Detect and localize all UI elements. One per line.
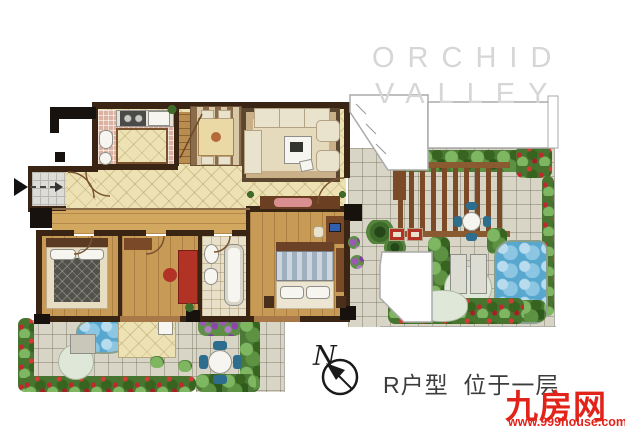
pillow bbox=[306, 286, 330, 299]
dining-chair bbox=[218, 156, 231, 165]
window-sill bbox=[254, 316, 300, 322]
pillow bbox=[78, 249, 104, 260]
terrace-boundary-line bbox=[554, 148, 555, 327]
bed-canopy bbox=[276, 251, 334, 281]
column bbox=[344, 204, 362, 221]
patio-chair bbox=[213, 341, 227, 350]
patio-table bbox=[158, 320, 173, 335]
garden-bottom-hedge bbox=[24, 376, 196, 392]
terrace-planter bbox=[393, 170, 406, 200]
floor-divider bbox=[52, 208, 250, 210]
nightstand bbox=[264, 296, 274, 308]
armchair bbox=[316, 150, 340, 172]
dining-chair bbox=[201, 156, 214, 165]
column bbox=[30, 208, 52, 228]
terrace-chair bbox=[483, 216, 491, 227]
computer-monitor bbox=[329, 223, 341, 232]
compass-n-label: N bbox=[313, 341, 337, 372]
purple-planter bbox=[350, 255, 364, 269]
red-chair bbox=[163, 268, 177, 282]
entry-arrow-icon bbox=[14, 178, 28, 196]
hatch-tick bbox=[356, 104, 366, 114]
toilet-fixture bbox=[204, 268, 218, 285]
bed-headboard bbox=[276, 242, 334, 251]
column bbox=[340, 306, 356, 320]
watermark-line1: ORCHID bbox=[372, 40, 564, 77]
patio-chair bbox=[233, 355, 242, 369]
pillow bbox=[50, 249, 76, 260]
chaise-sofa bbox=[244, 130, 262, 174]
wall-black bbox=[50, 107, 59, 133]
wall bbox=[28, 166, 94, 172]
bathtub bbox=[224, 244, 244, 306]
patio-round-table bbox=[208, 350, 232, 374]
window-sill bbox=[120, 316, 180, 322]
site-url: www.999house.com bbox=[508, 415, 625, 429]
red-desk bbox=[178, 250, 198, 304]
pergola bbox=[398, 168, 508, 231]
wall bbox=[246, 212, 250, 318]
wall bbox=[174, 106, 179, 166]
garden-chair bbox=[389, 228, 405, 241]
terrace-boundary-line bbox=[380, 326, 556, 327]
armchair bbox=[316, 120, 340, 142]
kitchen-island bbox=[116, 128, 168, 164]
lounge-chair bbox=[450, 254, 467, 294]
terrace-corner-bush bbox=[516, 146, 552, 178]
terrace-chair bbox=[466, 233, 477, 241]
dining-chair bbox=[201, 110, 214, 119]
entry-arrow-head bbox=[55, 182, 63, 192]
wardrobe bbox=[124, 238, 152, 250]
hallway-floor bbox=[52, 210, 250, 234]
lounge-chair bbox=[470, 254, 487, 294]
pillow bbox=[280, 286, 304, 299]
column bbox=[55, 152, 65, 162]
wall bbox=[344, 102, 350, 178]
watermark-line2: VALLEY bbox=[375, 76, 560, 113]
terrace-round-table bbox=[462, 212, 481, 231]
dining-centerpiece bbox=[211, 132, 221, 142]
garden-planter bbox=[70, 334, 96, 354]
entry-arrow-line bbox=[30, 186, 56, 188]
patio-boundary-line bbox=[284, 320, 285, 392]
terrace-chair bbox=[454, 216, 462, 227]
bathroom-sink bbox=[204, 244, 219, 264]
potted-plant bbox=[338, 190, 347, 199]
laptop-icon bbox=[290, 142, 303, 152]
pergola-top-rail bbox=[396, 162, 510, 168]
patio-chair bbox=[199, 355, 208, 369]
wall bbox=[118, 236, 122, 318]
garden-bush bbox=[178, 360, 192, 372]
toilet-fixture bbox=[99, 130, 113, 149]
stove-icon bbox=[120, 111, 146, 126]
hatch-tick bbox=[366, 124, 376, 134]
potted-plant bbox=[166, 104, 178, 115]
column bbox=[34, 314, 50, 324]
terrace-chair bbox=[466, 202, 477, 210]
nightstand bbox=[336, 296, 346, 308]
wardrobe bbox=[336, 248, 344, 292]
washbasin-fixture bbox=[99, 152, 112, 165]
floorplan-image: ORCHID VALLEY N R户型 位于一层 九房网 www.999hous… bbox=[0, 0, 625, 433]
sideboard-runner bbox=[274, 198, 312, 207]
patio-chair bbox=[213, 375, 227, 384]
garden-bush bbox=[150, 356, 164, 368]
white-shrub bbox=[416, 290, 468, 322]
wall bbox=[166, 230, 214, 236]
bed-quilt bbox=[54, 258, 100, 302]
dining-chair bbox=[218, 110, 231, 119]
desk-chair bbox=[313, 226, 324, 238]
garden-chair bbox=[407, 228, 423, 241]
wall bbox=[198, 236, 202, 318]
purple-planter bbox=[348, 236, 360, 249]
potted-plant bbox=[246, 190, 255, 199]
bed-headboard bbox=[46, 238, 108, 247]
wall bbox=[96, 164, 178, 170]
wall bbox=[36, 230, 74, 236]
wall bbox=[36, 230, 42, 320]
potted-plant bbox=[184, 302, 195, 313]
